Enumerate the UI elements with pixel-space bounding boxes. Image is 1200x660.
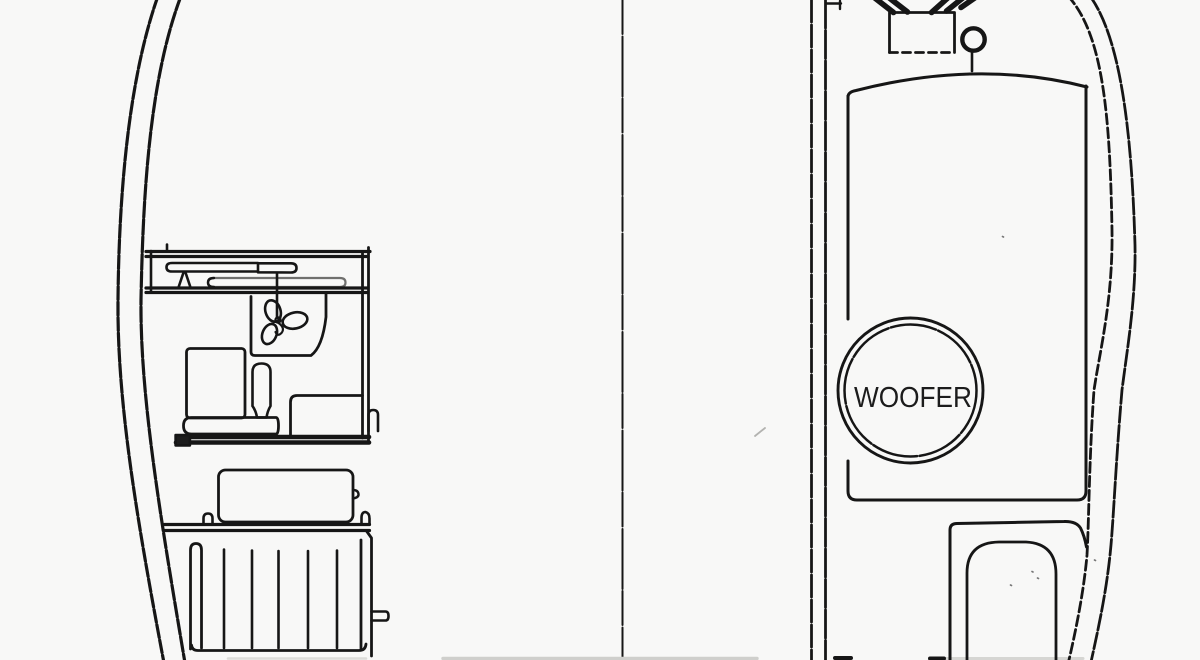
svg-text:WOOFER: WOOFER	[854, 382, 972, 414]
